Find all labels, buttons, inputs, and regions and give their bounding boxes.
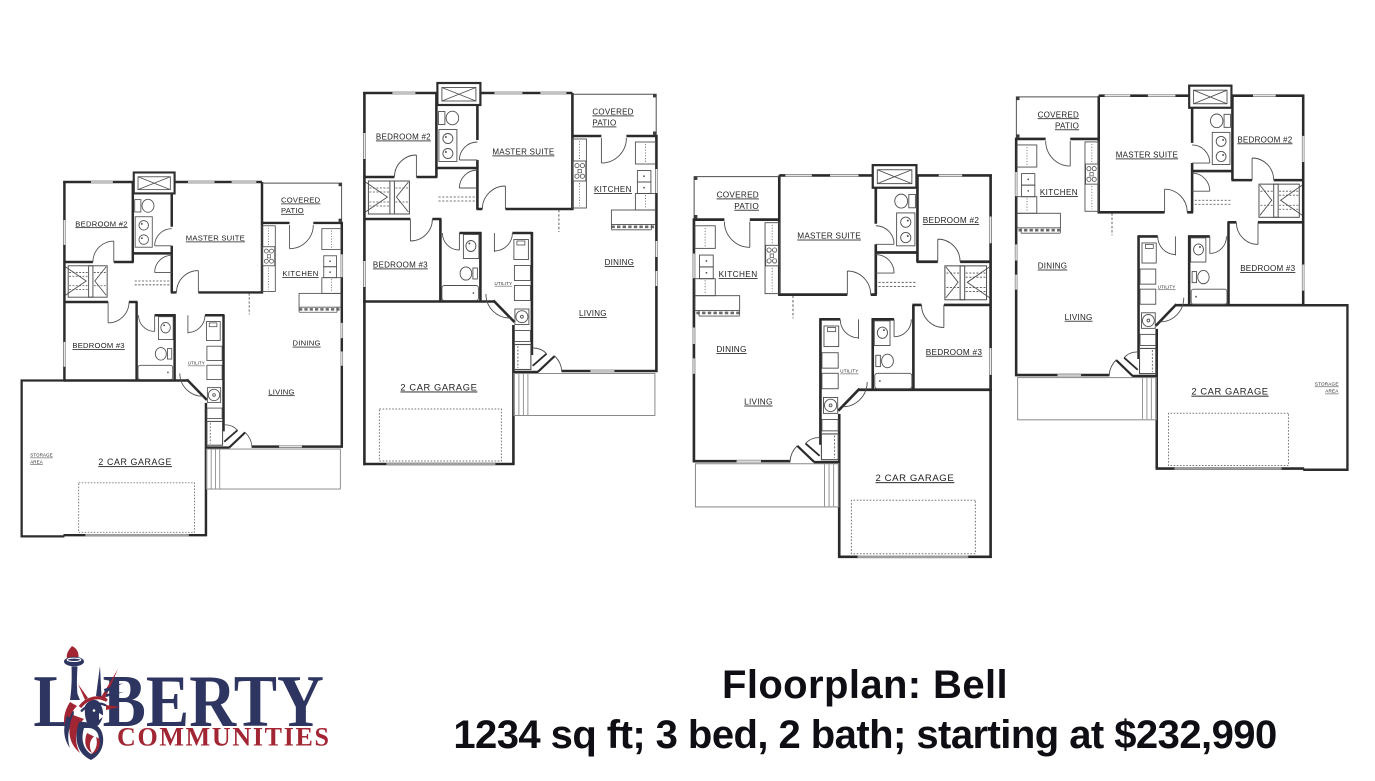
svg-text:MASTER SUITE: MASTER SUITE	[797, 232, 861, 241]
svg-text:DINING: DINING	[605, 258, 635, 267]
svg-text:STORAGE: STORAGE	[1315, 382, 1339, 387]
svg-text:BEDROOM #2: BEDROOM #2	[923, 216, 980, 225]
svg-text:KITCHEN: KITCHEN	[719, 270, 758, 279]
svg-text:BEDROOM #3: BEDROOM #3	[1240, 264, 1295, 273]
svg-text:PATIO: PATIO	[592, 119, 616, 128]
svg-text:KITCHEN: KITCHEN	[1040, 188, 1078, 197]
svg-text:KITCHEN: KITCHEN	[594, 185, 632, 194]
svg-text:COVERED: COVERED	[592, 108, 633, 117]
svg-text:COVERED: COVERED	[717, 191, 759, 200]
svg-text:MASTER SUITE: MASTER SUITE	[1116, 151, 1179, 160]
svg-text:LIVING: LIVING	[744, 398, 772, 407]
svg-text:BEDROOM #2: BEDROOM #2	[1237, 135, 1292, 144]
svg-text:BEDROOM #3: BEDROOM #3	[926, 348, 983, 357]
svg-text:UTILITY: UTILITY	[1158, 285, 1176, 290]
svg-text:DINING: DINING	[716, 345, 746, 354]
svg-text:LIVING: LIVING	[1065, 313, 1093, 322]
svg-text:2 CAR GARAGE: 2 CAR GARAGE	[875, 473, 954, 484]
svg-text:PATIO: PATIO	[1055, 121, 1079, 130]
svg-text:COVERED: COVERED	[1038, 110, 1079, 119]
svg-text:LIVING: LIVING	[579, 309, 607, 318]
svg-text:BEDROOM #3: BEDROOM #3	[373, 261, 428, 270]
svg-text:UTILITY: UTILITY	[840, 369, 858, 374]
svg-text:PATIO: PATIO	[734, 202, 759, 211]
svg-text:BEDROOM #2: BEDROOM #2	[376, 133, 431, 142]
svg-text:UTILITY: UTILITY	[495, 281, 513, 286]
svg-text:DINING: DINING	[1038, 262, 1068, 271]
svg-text:2 CAR GARAGE: 2 CAR GARAGE	[1191, 387, 1268, 397]
svg-text:AREA: AREA	[1325, 389, 1339, 394]
svg-text:COMMUNITIES: COMMUNITIES	[117, 723, 331, 752]
svg-text:2 CAR GARAGE: 2 CAR GARAGE	[400, 383, 477, 393]
svg-text:MASTER SUITE: MASTER SUITE	[492, 148, 554, 157]
